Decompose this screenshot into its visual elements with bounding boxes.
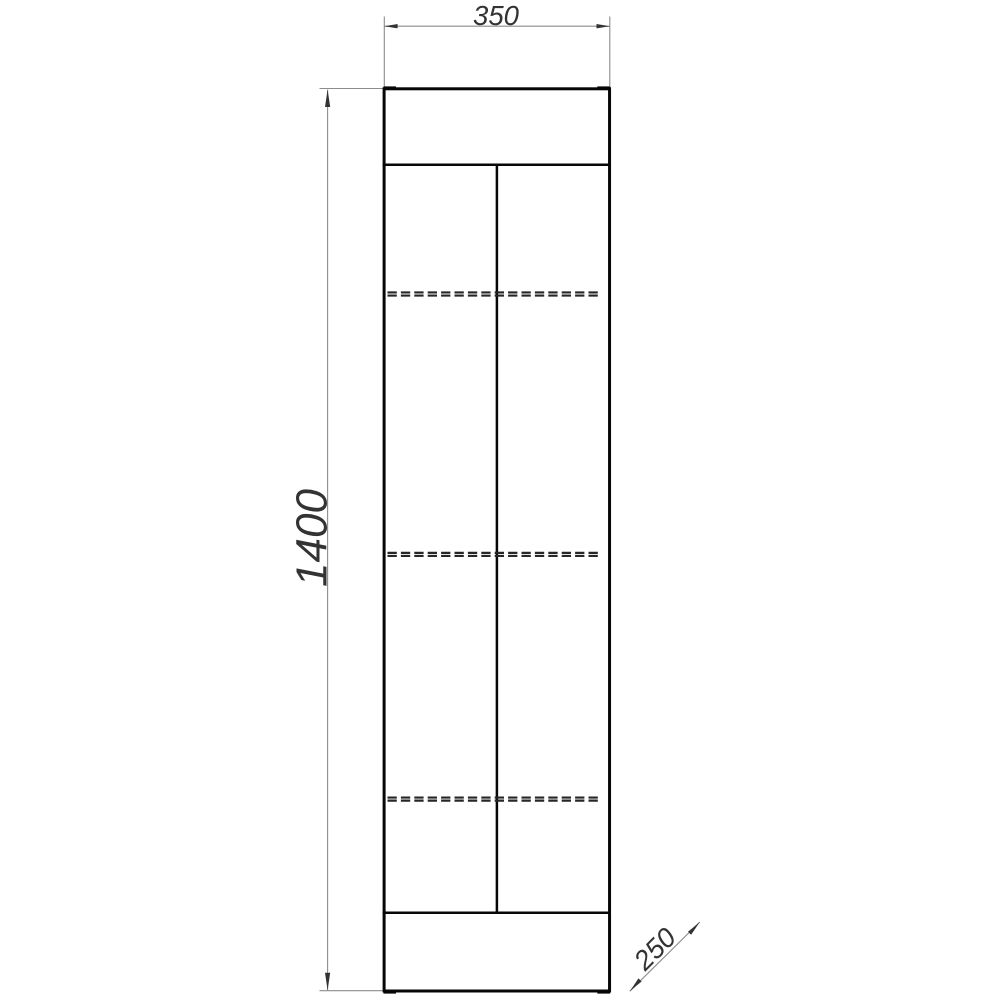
svg-text:350: 350 [473,0,520,31]
svg-text:1400: 1400 [287,489,336,587]
